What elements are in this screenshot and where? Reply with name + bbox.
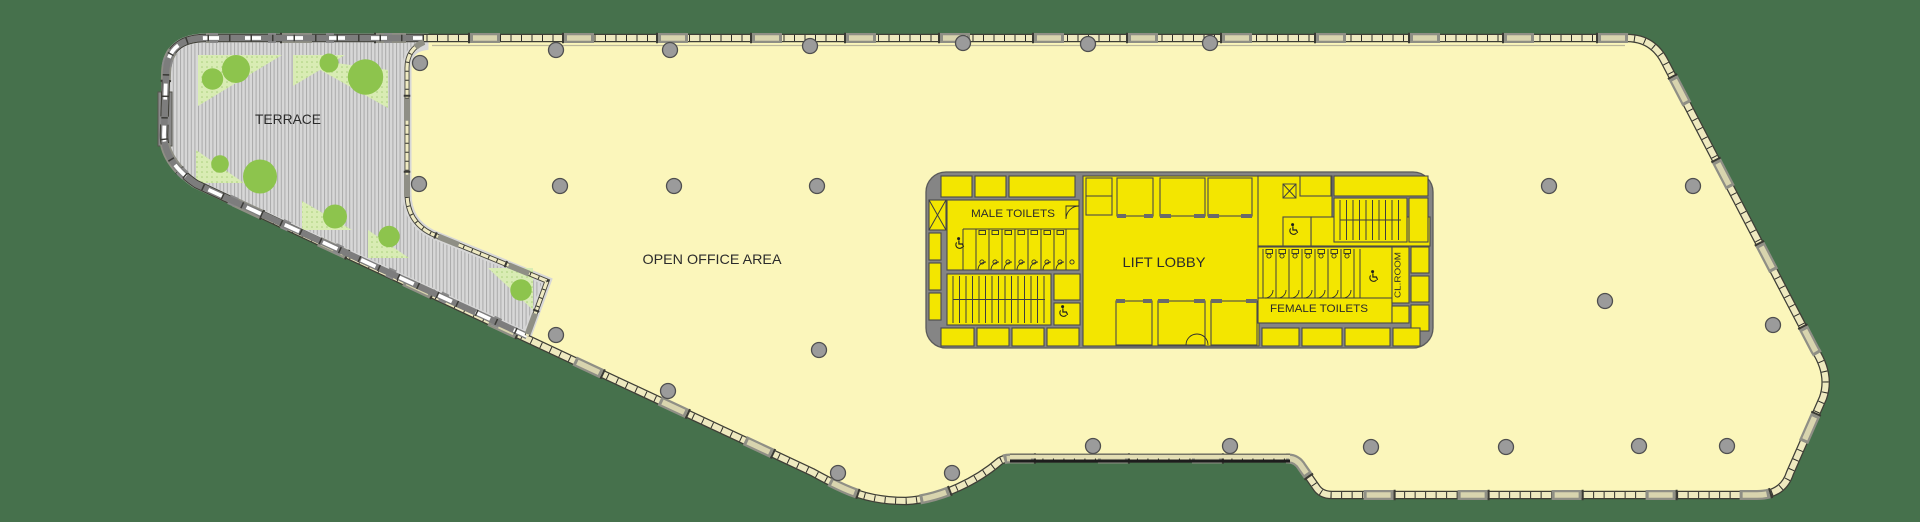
svg-text:LIFT LOBBY: LIFT LOBBY: [1123, 254, 1207, 270]
svg-text:OPEN OFFICE AREA: OPEN OFFICE AREA: [643, 251, 783, 267]
svg-text:MALE TOILETS: MALE TOILETS: [971, 208, 1055, 220]
svg-text:FEMALE TOILETS: FEMALE TOILETS: [1270, 303, 1368, 315]
svg-text:TERRACE: TERRACE: [255, 111, 321, 127]
svg-text:CL.ROOM: CL.ROOM: [1394, 252, 1403, 298]
